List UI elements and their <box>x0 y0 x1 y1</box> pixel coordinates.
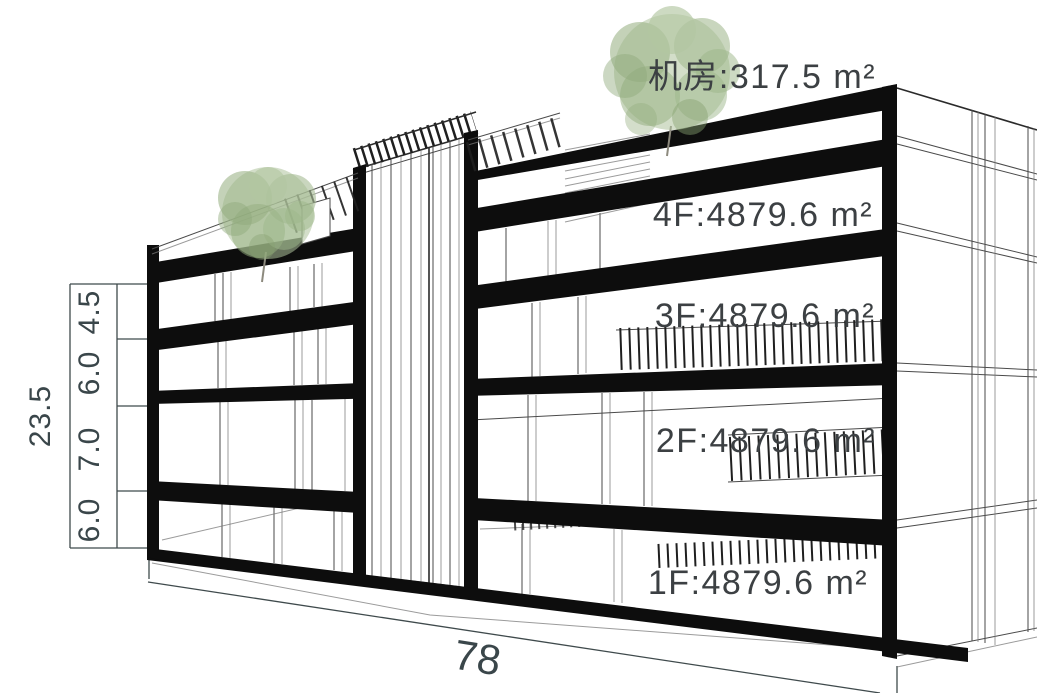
label-1f: 1F:4879.6 m² <box>648 564 868 602</box>
segment-label-6-0-a: 6.0 <box>73 351 106 396</box>
building-section-diagram: 23.5 4.5 6.0 7.0 6.0 78 <box>0 0 1037 693</box>
roof-railing-right <box>468 113 560 157</box>
segment-label-4-5: 4.5 <box>73 290 106 335</box>
right-corner-column <box>882 84 897 659</box>
height-dimension-annotation: 23.5 4.5 6.0 7.0 6.0 <box>24 284 150 548</box>
core-tower <box>353 112 478 594</box>
label-4f: 4F:4879.6 m² <box>653 196 873 234</box>
building-side-face <box>897 88 1037 667</box>
segment-label-7-0: 7.0 <box>73 427 106 472</box>
facade-window-mullions <box>162 213 893 603</box>
label-2f: 2F:4879.6 m² <box>656 422 876 460</box>
slab-3f <box>150 363 893 404</box>
section-drawing: 23.5 4.5 6.0 7.0 6.0 78 <box>0 0 1037 693</box>
label-machine-room: 机房:317.5 m² <box>648 58 876 96</box>
left-corner-column <box>147 245 159 560</box>
label-3f: 3F:4879.6 m² <box>655 297 875 335</box>
width-label: 78 <box>451 631 504 685</box>
total-height-label: 23.5 <box>24 385 57 447</box>
segment-label-6-0-b: 6.0 <box>73 498 106 543</box>
